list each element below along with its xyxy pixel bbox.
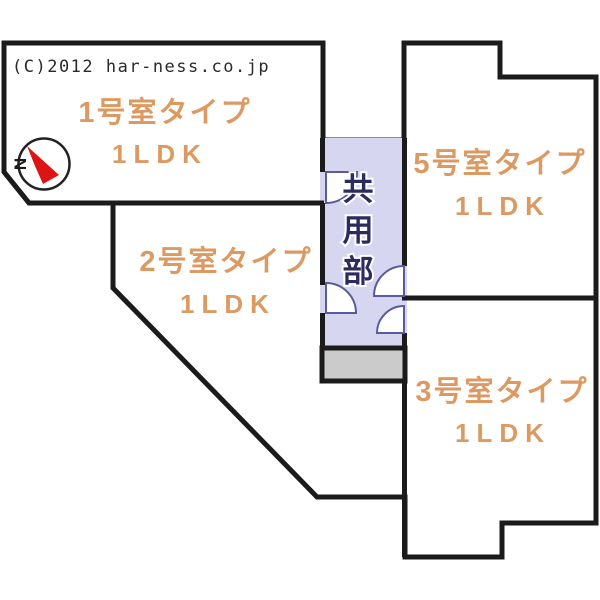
common-area-char-2: 用 [343, 213, 374, 248]
room-1-label: 1号室タイプ [78, 95, 251, 129]
common-area-label: 共 用 部 [343, 172, 374, 289]
copyright-text: (C)2012 har-ness.co.jp [12, 57, 270, 77]
common-area-char-3: 部 [343, 254, 374, 289]
common-area-char-1: 共 [343, 172, 374, 207]
room-2-layout-label: 1LDK [180, 289, 276, 319]
floor-plan-svg: (C)2012 har-ness.co.jp 1号室タイプ 1LDK 2号室タイ… [0, 0, 600, 600]
room-3-label: 3号室タイプ [415, 374, 588, 408]
room-2-label: 2号室タイプ [139, 244, 312, 278]
room-5-label: 5号室タイプ [413, 146, 586, 180]
floor-plan-image: (C)2012 har-ness.co.jp 1号室タイプ 1LDK 2号室タイ… [0, 0, 600, 600]
room-1-layout-label: 1LDK [112, 139, 208, 169]
room-3-layout-label: 1LDK [455, 418, 551, 448]
room-5-layout-label: 1LDK [455, 191, 551, 221]
stairs-area [322, 348, 405, 381]
compass-n-label: N [11, 158, 30, 170]
